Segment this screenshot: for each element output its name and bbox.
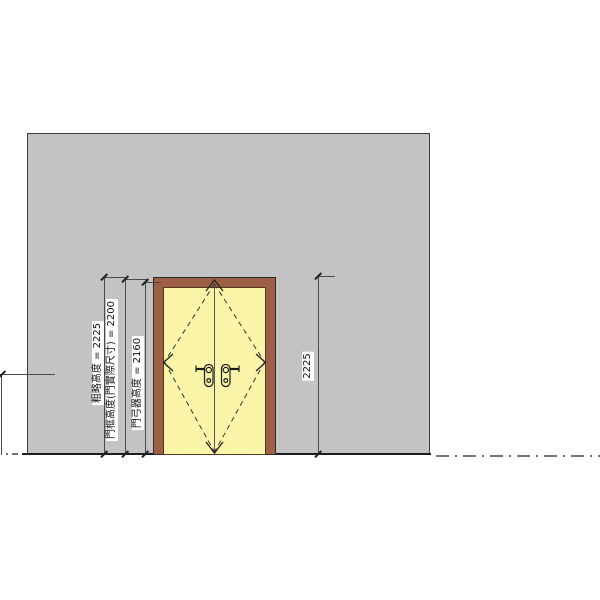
double-door[interactable]	[153, 277, 276, 455]
dim-ext-handle-height	[0, 374, 55, 375]
dim-line-handle-height	[1, 374, 2, 455]
dim-line-closer-height	[145, 282, 146, 455]
dim-line-frame-height	[125, 279, 126, 455]
dim-label-frame-height[interactable]: 門框高度(門實際尺寸) = 2200	[106, 299, 118, 441]
dim-label-right-2225[interactable]: 2225	[302, 351, 314, 380]
dim-line-rough-height	[104, 277, 105, 455]
centerline-dash-left	[12, 453, 18, 455]
elevation-drawing-canvas: 粗略高度 = 2225 門框高度(門實際尺寸) = 2200 門弓器高度 = 2…	[0, 0, 600, 600]
door-symbol-overlay	[153, 277, 276, 455]
centerline-right	[436, 455, 600, 457]
dim-label-rough-height[interactable]: 粗略高度 = 2225	[92, 321, 104, 405]
dim-ext-right-2225	[318, 276, 335, 277]
dim-label-closer-height[interactable]: 門弓器高度 = 2160	[132, 336, 144, 430]
dim-ext-closer-height	[145, 282, 161, 283]
left-door-handle	[196, 365, 213, 387]
centerline-dot-left	[6, 453, 8, 455]
right-door-handle	[222, 365, 240, 387]
dim-line-right-2225	[318, 276, 319, 455]
